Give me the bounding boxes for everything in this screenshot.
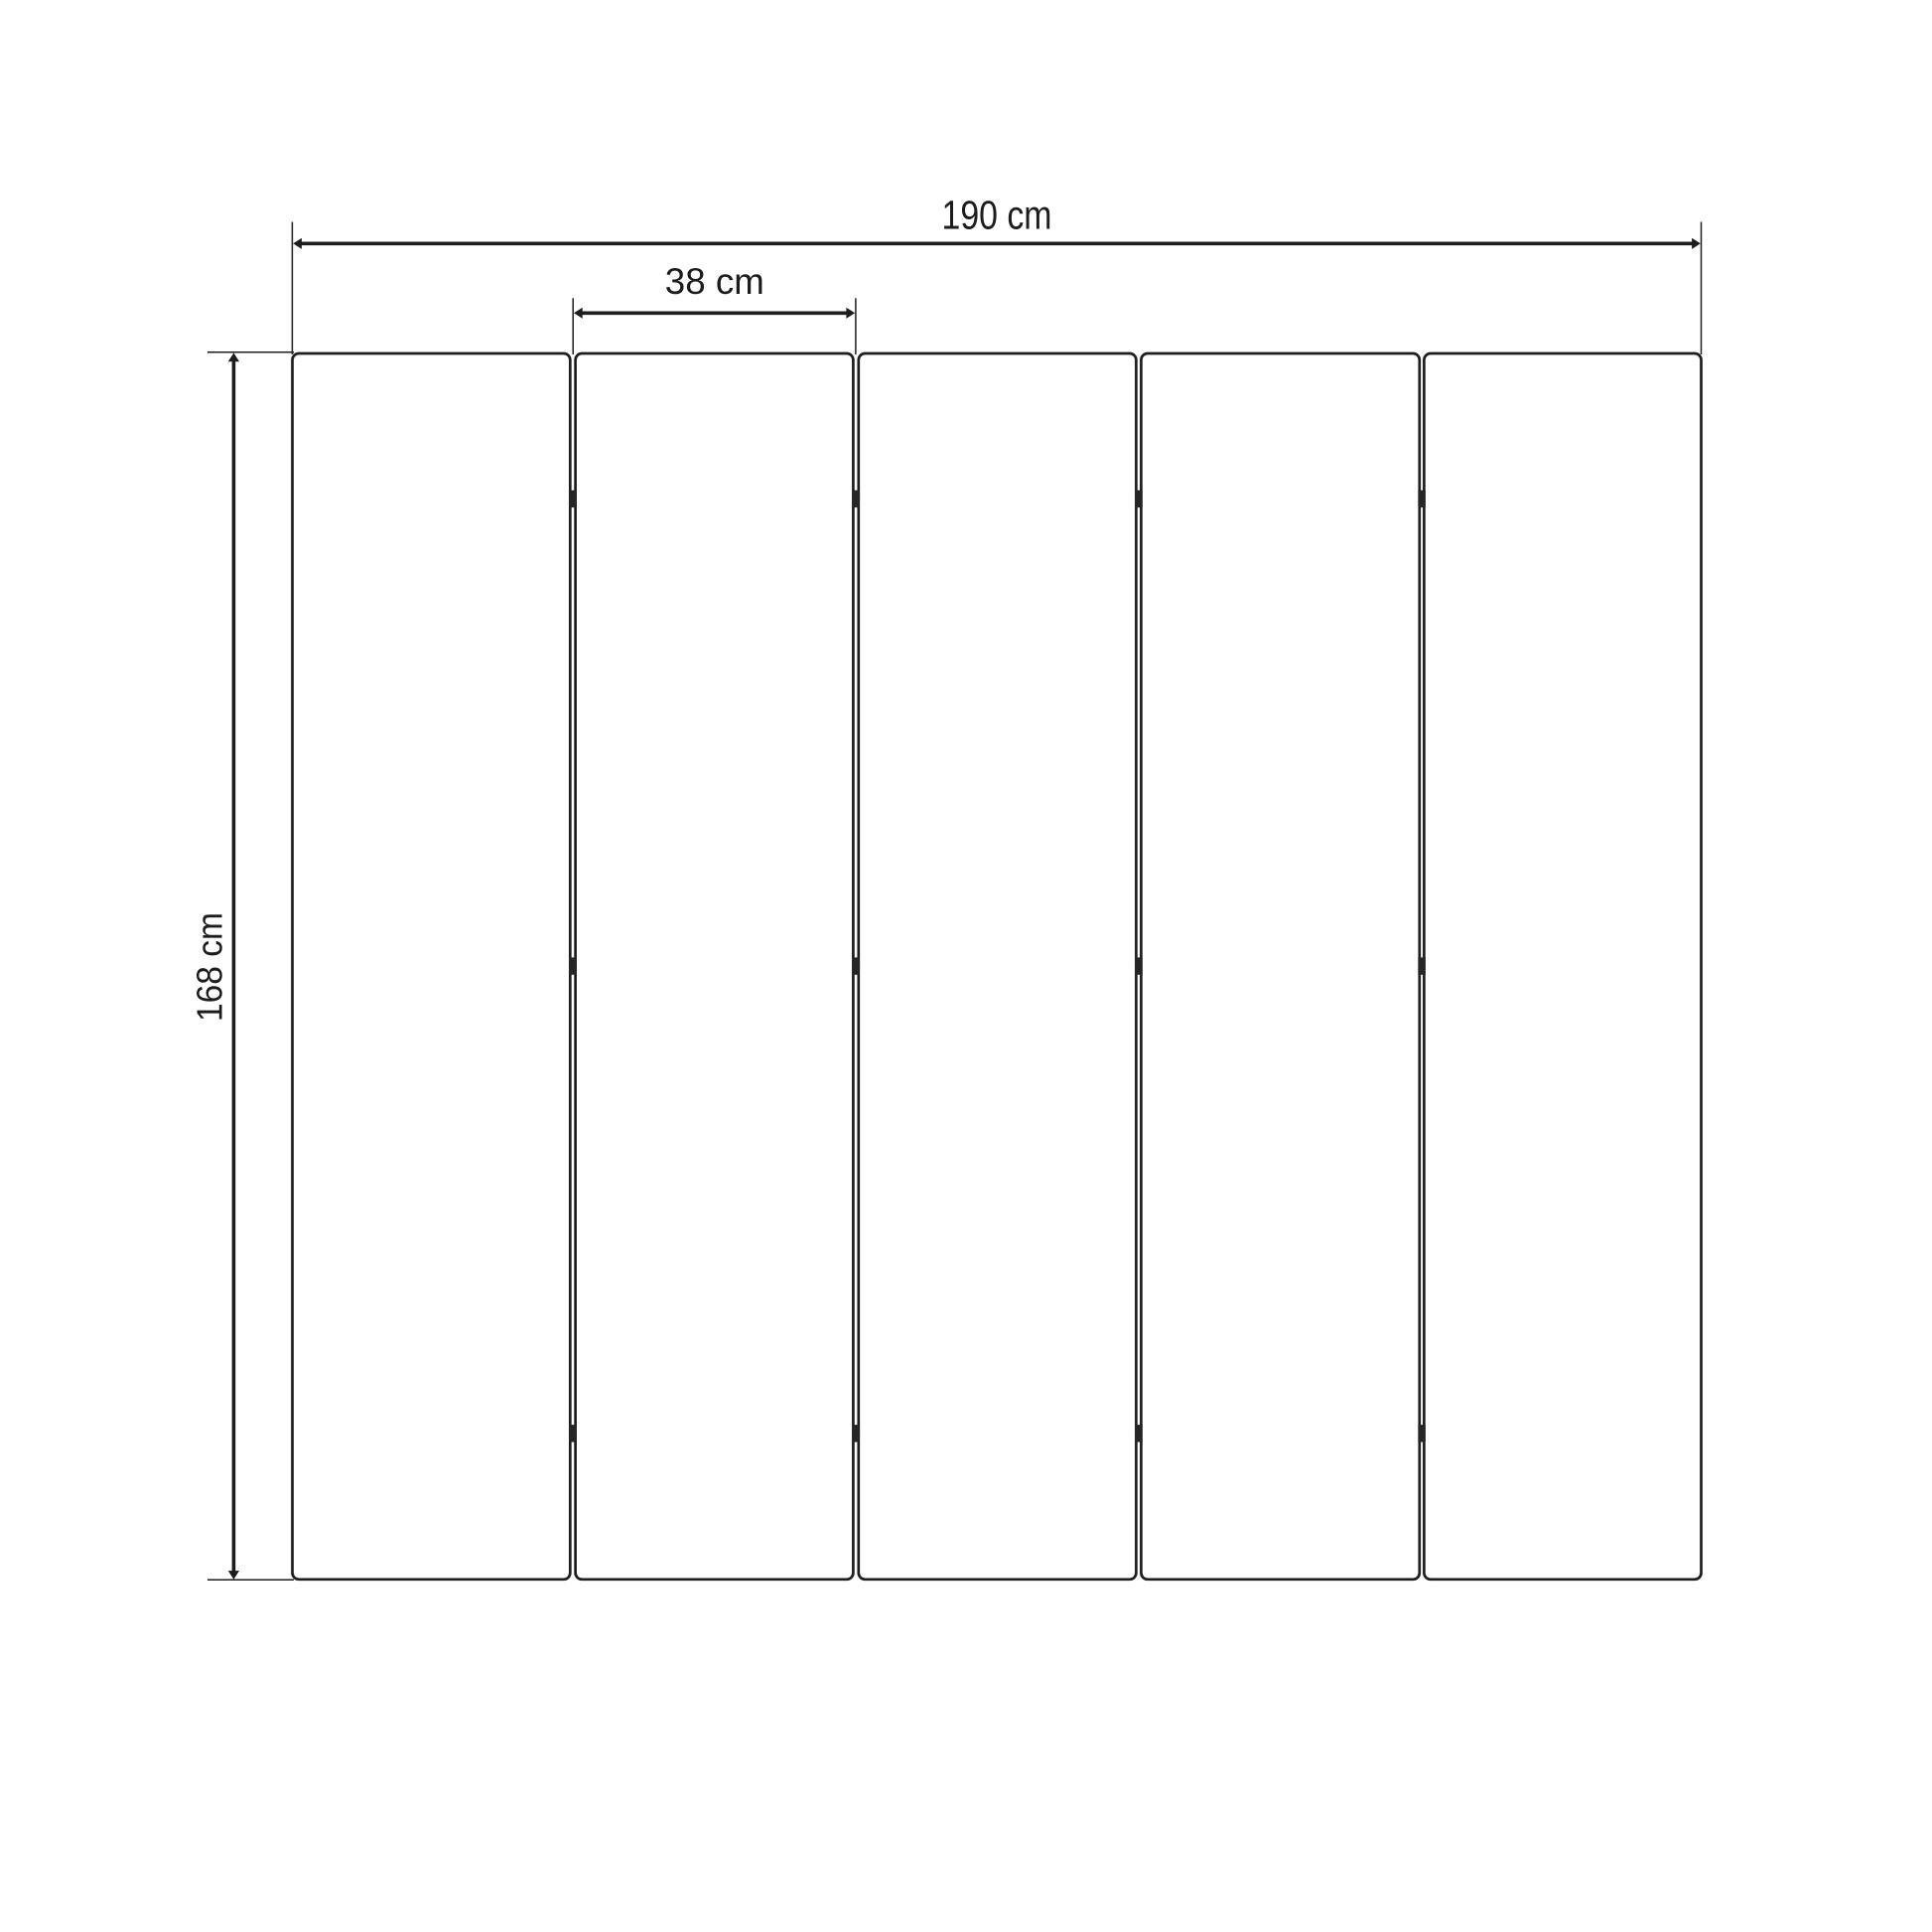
svg-text:168 cm: 168 cm (190, 912, 230, 1022)
svg-text:190 cm: 190 cm (942, 192, 1052, 237)
svg-text:38 cm: 38 cm (665, 261, 764, 302)
